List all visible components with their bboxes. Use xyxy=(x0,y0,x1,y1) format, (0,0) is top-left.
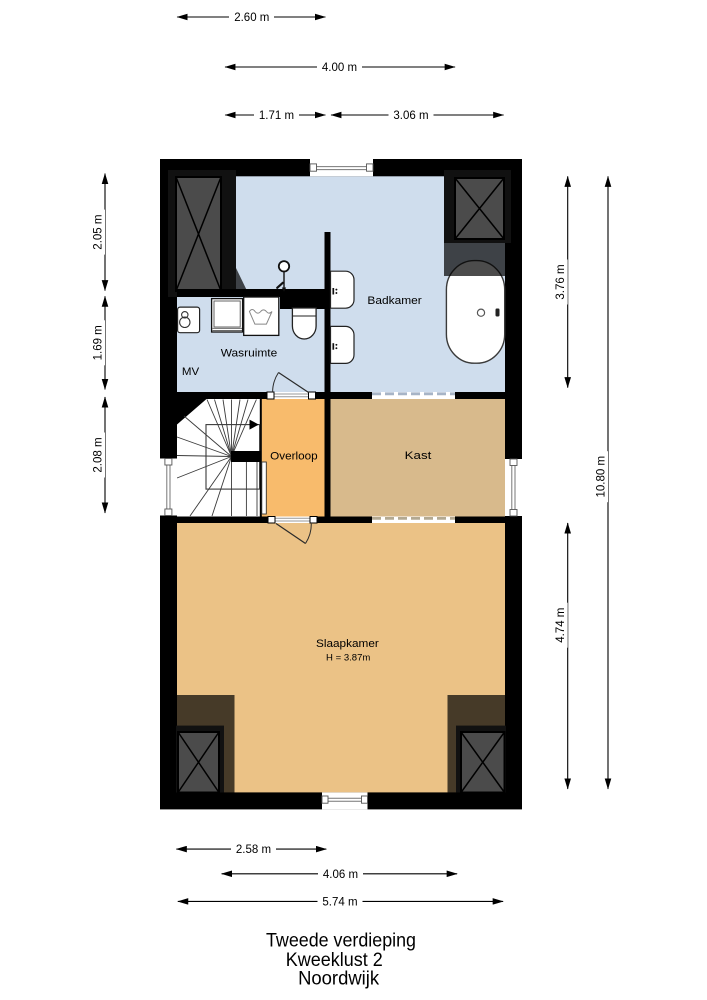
svg-text:1.71 m: 1.71 m xyxy=(259,110,294,122)
svg-text:4.06 m: 4.06 m xyxy=(323,869,358,881)
svg-text:Wasruimte: Wasruimte xyxy=(221,348,278,360)
svg-text:4.74 m: 4.74 m xyxy=(555,608,567,643)
svg-text:2.08 m: 2.08 m xyxy=(93,437,105,472)
svg-text:2.05 m: 2.05 m xyxy=(93,215,105,250)
svg-text:3.06 m: 3.06 m xyxy=(393,110,428,122)
svg-text:3.76 m: 3.76 m xyxy=(555,264,567,299)
svg-text:Overloop: Overloop xyxy=(270,450,318,462)
svg-text:Noordwijk: Noordwijk xyxy=(298,968,379,990)
svg-text:5.74 m: 5.74 m xyxy=(322,896,357,908)
svg-text:MV: MV xyxy=(182,366,200,378)
svg-text:10.80 m: 10.80 m xyxy=(596,456,608,498)
svg-text:2.58 m: 2.58 m xyxy=(236,844,271,856)
svg-text:H = 3.87m: H = 3.87m xyxy=(326,653,370,664)
svg-text:Slaapkamer: Slaapkamer xyxy=(316,638,379,650)
svg-text:Kast: Kast xyxy=(405,450,433,462)
svg-text:2.60 m: 2.60 m xyxy=(234,12,269,24)
svg-text:4.00 m: 4.00 m xyxy=(322,62,357,74)
svg-text:1.69 m: 1.69 m xyxy=(93,325,105,360)
svg-text:Badkamer: Badkamer xyxy=(367,295,422,307)
